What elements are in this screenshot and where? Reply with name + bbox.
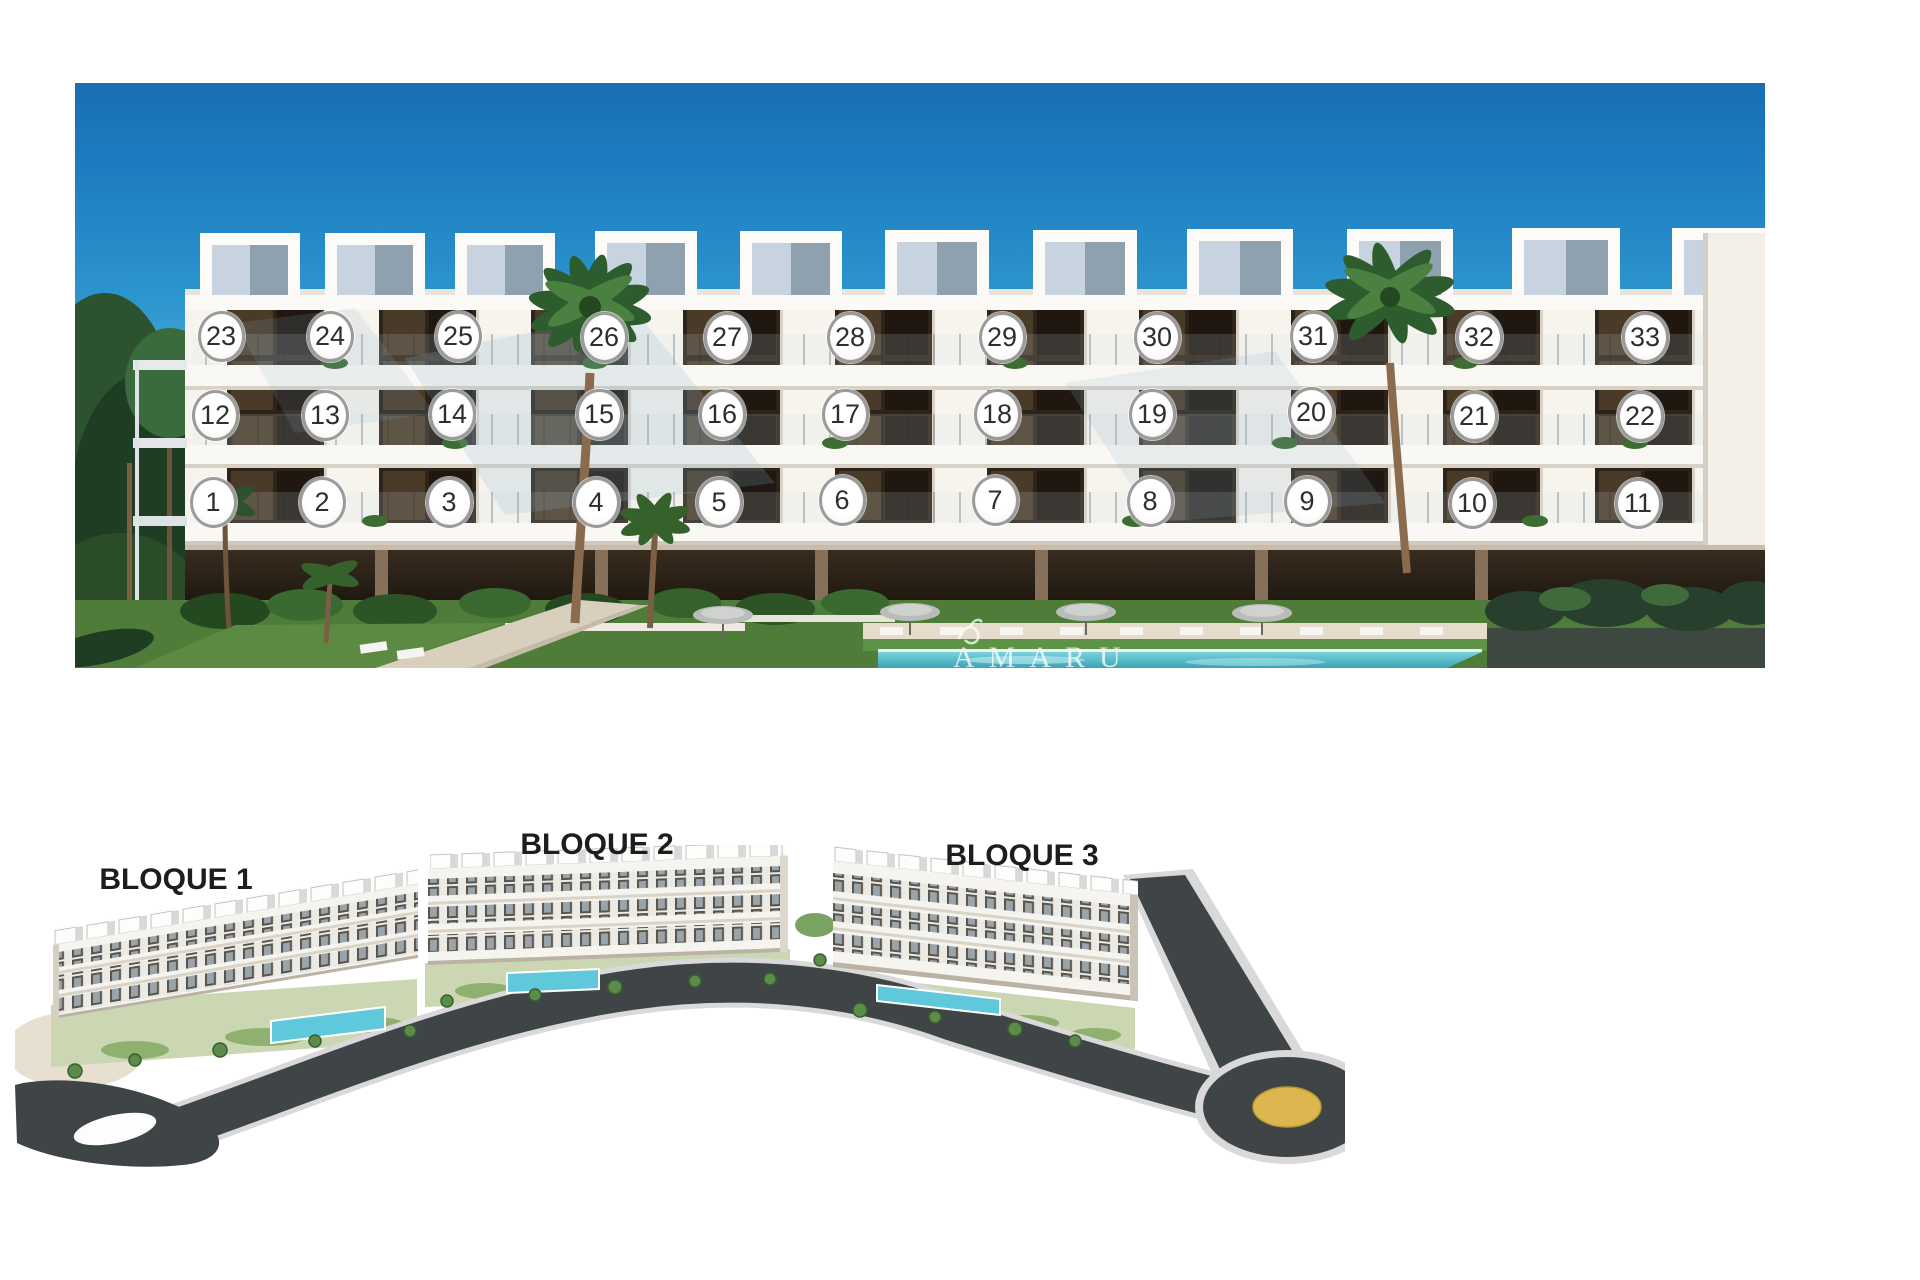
bloque-3-label: BLOQUE 3	[945, 839, 1098, 873]
roundabout-center	[1253, 1087, 1321, 1127]
facade-photo: AMARU	[75, 83, 1765, 668]
bloque-2-building	[428, 845, 788, 965]
bloque-2-label: BLOQUE 2	[520, 828, 673, 862]
marketing-image: AMARU	[0, 0, 1920, 1280]
bloque-1-label: BLOQUE 1	[99, 863, 252, 897]
hedge-block	[1487, 628, 1765, 668]
facade-render: AMARU	[75, 83, 1765, 668]
watermark-text: AMARU	[953, 641, 1135, 668]
